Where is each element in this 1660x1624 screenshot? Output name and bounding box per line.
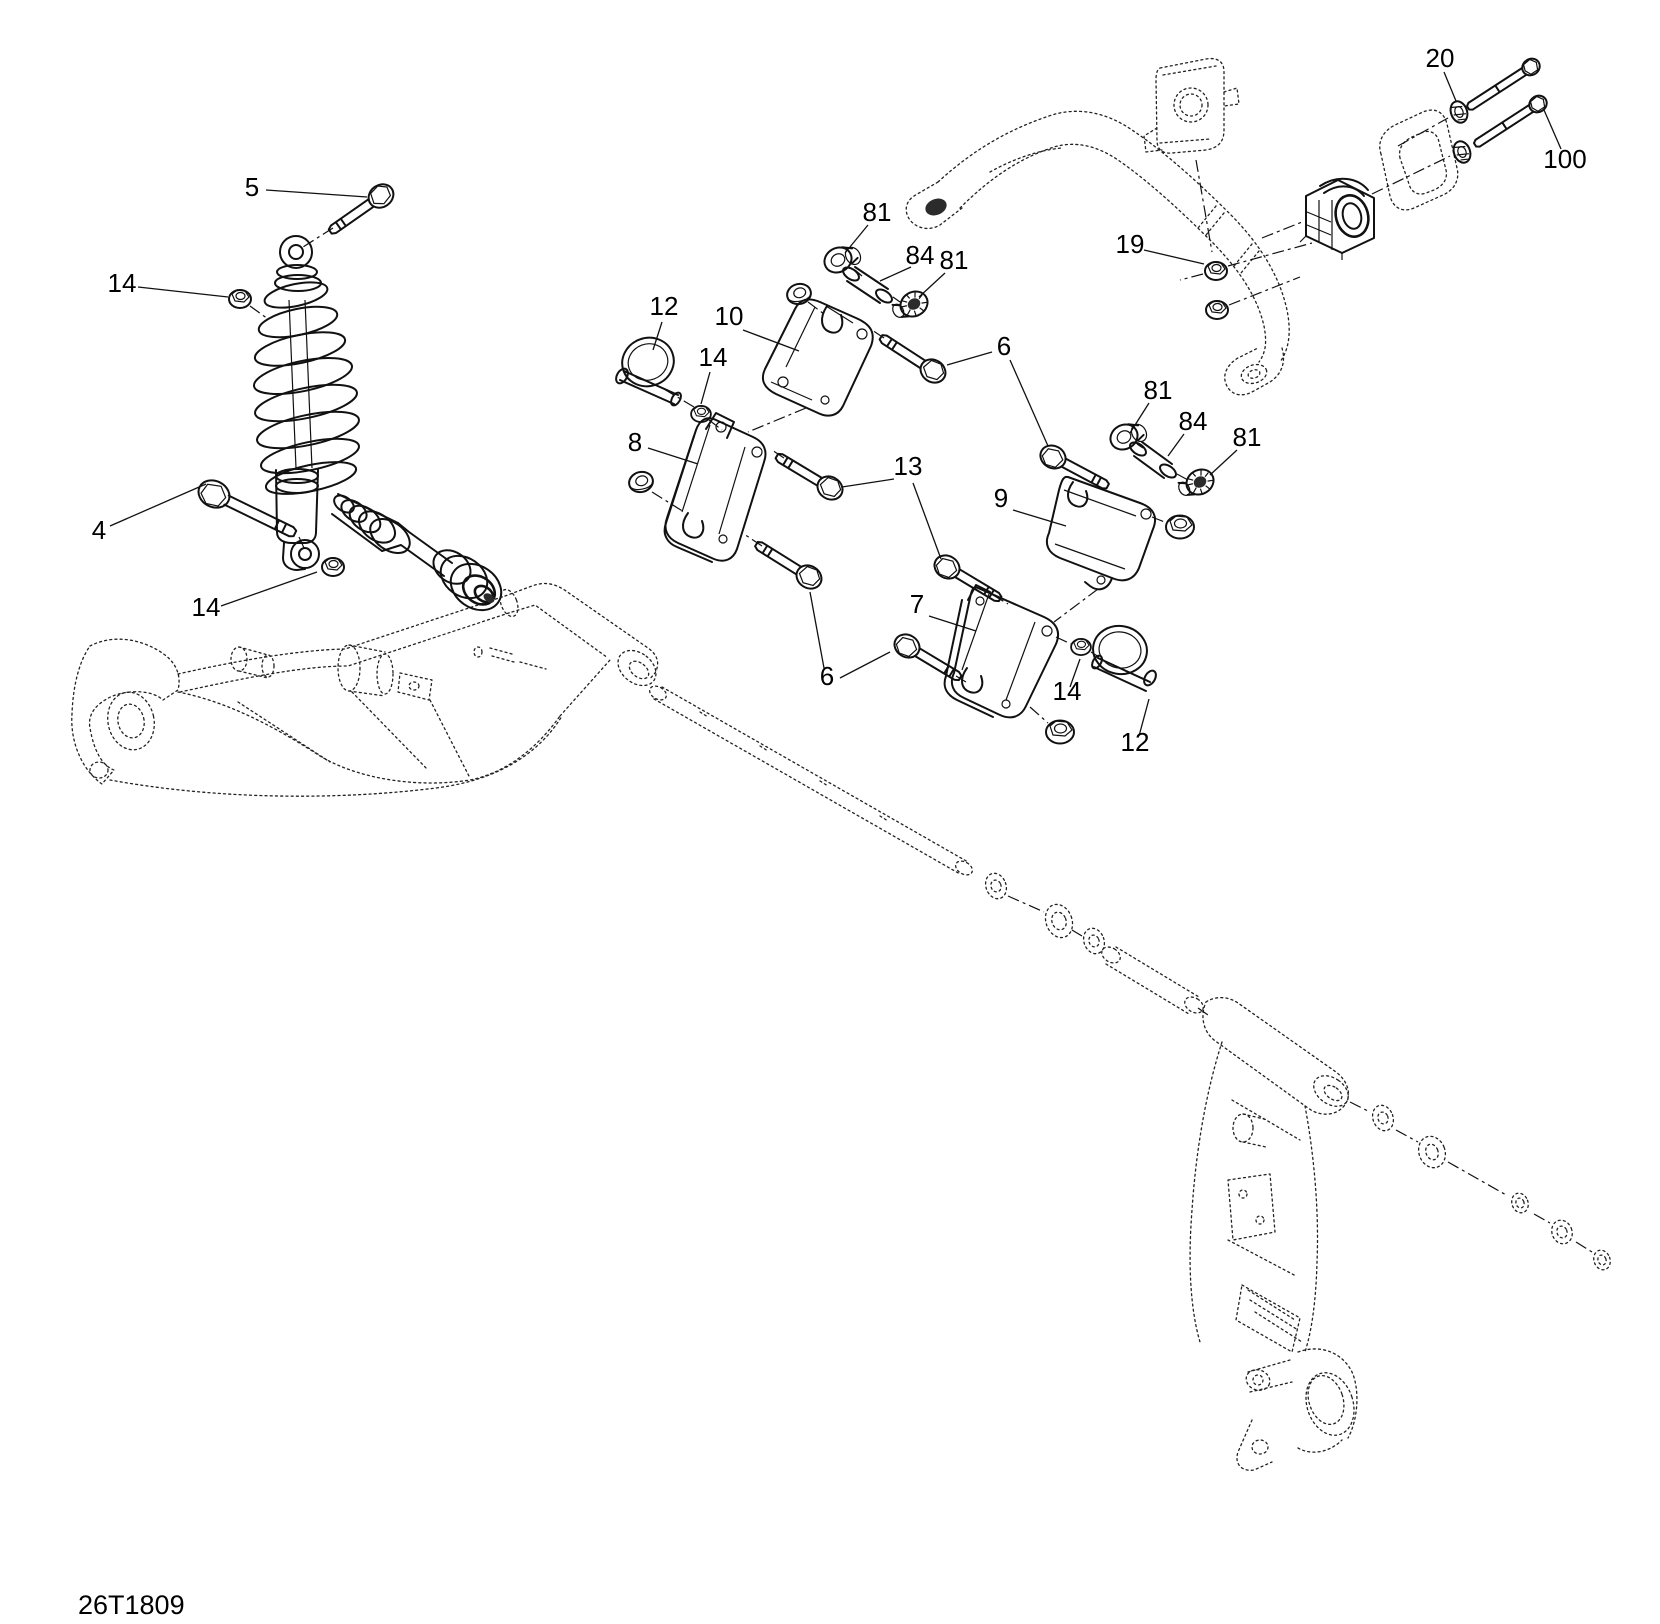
- callout-7: 7: [910, 589, 924, 619]
- bolt-5: [324, 180, 398, 241]
- callout-13: 13: [894, 451, 923, 481]
- callout-84-b: 84: [1179, 406, 1208, 436]
- mount-bracket-phantom: [1144, 59, 1239, 252]
- parts-diagram-page: 5 14 4 14 12 10 14 8 81 84 81 6 19 20 10…: [0, 0, 1660, 1624]
- callout-14-d: 14: [1053, 676, 1082, 706]
- callout-6-lower: 6: [820, 661, 834, 691]
- callout-81-a: 81: [863, 197, 892, 227]
- washer-20: [1448, 99, 1471, 125]
- bolt-13-a: [771, 447, 847, 504]
- spacer-84-a: [841, 265, 895, 305]
- callout-81-c: 81: [1144, 375, 1173, 405]
- drive-shaft: [331, 492, 510, 620]
- shoulder-button-lower: [627, 469, 655, 495]
- bushing-clamp-block: [1300, 179, 1374, 260]
- callout-9: 9: [994, 483, 1008, 513]
- bushing-81-c: [1106, 416, 1150, 456]
- nut-19-lower: [1206, 301, 1228, 319]
- bushing-81-b: [889, 287, 932, 326]
- trailing-arm-phantom: [1099, 944, 1613, 1471]
- callout-14-a: 14: [108, 268, 137, 298]
- sway-bar-nuts-19: [1180, 243, 1312, 319]
- nut-14-lower: [322, 558, 344, 576]
- nut-19-upper: [1205, 262, 1227, 280]
- callout-14-c: 14: [699, 342, 728, 372]
- phantom-shaft: [647, 683, 1108, 956]
- frame-phantom: [72, 584, 663, 797]
- leader-lines: [110, 72, 1561, 736]
- link-plate-10: [763, 299, 873, 415]
- callout-81-b: 81: [940, 245, 969, 275]
- exploded-view-canvas: 5 14 4 14 12 10 14 8 81 84 81 6 19 20 10…: [0, 0, 1660, 1624]
- bolt-6-c: [751, 535, 826, 593]
- flange-nut-plate9: [1166, 516, 1194, 539]
- bushing-81-d: [1175, 465, 1218, 504]
- callout-19: 19: [1116, 229, 1145, 259]
- link-plate-9: [1047, 477, 1155, 589]
- callout-5: 5: [245, 172, 259, 202]
- clamp-half-phantom: [1380, 110, 1458, 210]
- callout-100: 100: [1543, 144, 1586, 174]
- callout-12-b: 12: [1121, 727, 1150, 757]
- coil-spring: [251, 278, 362, 501]
- callout-84-a: 84: [906, 240, 935, 270]
- washer-100: [1451, 139, 1474, 165]
- bolt-6-b: [1036, 441, 1113, 496]
- lynch-pin-12-right: [1089, 622, 1158, 691]
- bolt-6-a: [875, 328, 950, 387]
- callout-6-upper: 6: [997, 331, 1011, 361]
- link-plate-7: [945, 585, 1058, 717]
- bolt-100: [1471, 92, 1550, 151]
- diagram-code: 26T1809: [78, 1590, 185, 1620]
- lynch-pin-12-left: [614, 331, 683, 408]
- bolt-4: [194, 475, 301, 545]
- callout-labels: 5 14 4 14 12 10 14 8 81 84 81 6 19 20 10…: [92, 43, 1587, 757]
- spacer-84-b: [1128, 440, 1179, 480]
- nut-14-center: [691, 406, 711, 422]
- callout-4: 4: [92, 515, 106, 545]
- callout-20: 20: [1426, 43, 1455, 73]
- link-plate-8: [665, 413, 766, 562]
- nut-14-right: [1071, 639, 1091, 655]
- flange-nut-plate7: [1046, 721, 1074, 744]
- callout-81-d: 81: [1233, 422, 1262, 452]
- callout-8: 8: [628, 427, 642, 457]
- trailing-arm-washers: [1369, 1102, 1613, 1272]
- nut-14-upper: [229, 290, 251, 308]
- callout-10: 10: [715, 301, 744, 331]
- callout-12-a: 12: [650, 291, 679, 321]
- callout-14-b: 14: [192, 592, 221, 622]
